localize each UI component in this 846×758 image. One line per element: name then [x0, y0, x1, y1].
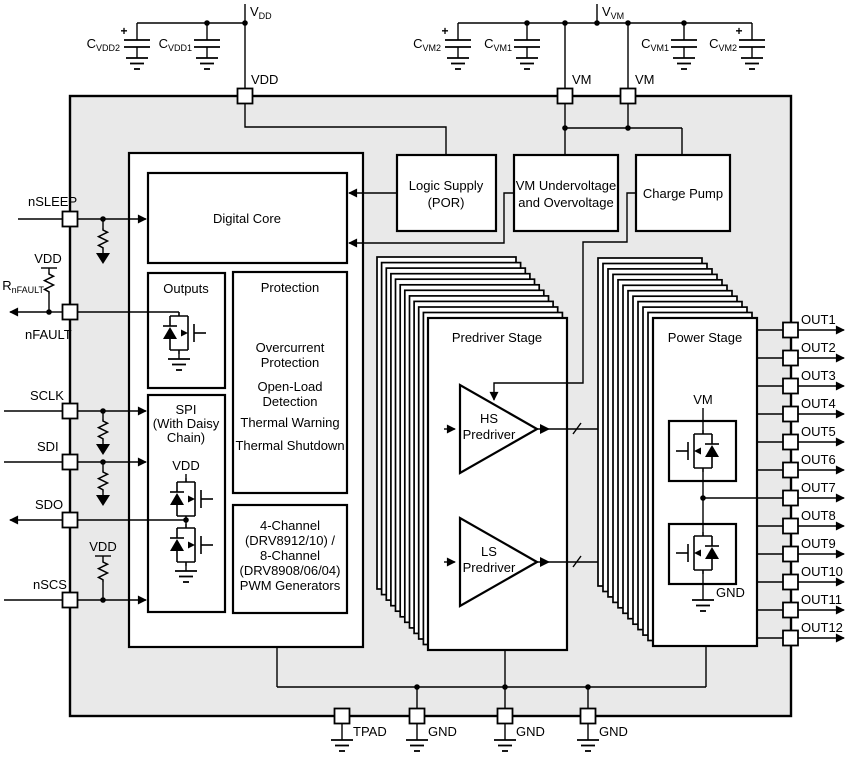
hs-predriver-label-2: Predriver [463, 427, 516, 442]
capacitor-icon [739, 40, 765, 47]
nscs-label: nSCS [33, 577, 67, 592]
pwm-label-2: (DRV8912/10) / [245, 533, 335, 548]
pwm-label-1: 4-Channel [260, 518, 320, 533]
charge-pump-label: Charge Pump [643, 186, 723, 201]
protection-item: Overcurrent [256, 340, 325, 355]
capacitor-icon [194, 40, 220, 47]
vm-monitor-label-2: and Overvoltage [518, 195, 613, 210]
nfault-label: nFAULT [25, 327, 72, 342]
ground-icon [406, 740, 428, 751]
pin-vm-1 [558, 89, 573, 104]
cvdd2-label: CVDD2 [87, 36, 120, 53]
svg-text:GND: GND [428, 724, 457, 739]
vm-pin-1-label: VM [572, 72, 592, 87]
ls-predriver-label-1: LS [481, 544, 497, 559]
ground-icon [126, 58, 148, 69]
svg-text:GND: GND [516, 724, 545, 739]
cvm2-right-plus: + [735, 24, 742, 38]
svg-text:OUT7: OUT7 [801, 480, 836, 495]
pin-vdd [238, 89, 253, 104]
protection-item: Detection [263, 394, 318, 409]
protection-item: Open-Load [257, 379, 322, 394]
svg-text:OUT2: OUT2 [801, 340, 836, 355]
protection-title: Protection [261, 280, 320, 295]
outputs-label: Outputs [163, 281, 209, 296]
block-diagram-page: TPAD GND GND GND OUT1 OUT2 OUT3 OUT4 OUT… [0, 0, 846, 758]
spi-label-3: Chain) [167, 430, 205, 445]
capacitor-icon [445, 40, 471, 47]
sdi-label: SDI [37, 439, 59, 454]
cap-cvdd1 [194, 23, 220, 69]
ground-icon [331, 740, 353, 751]
svg-text:TPAD: TPAD [353, 724, 387, 739]
ground-icon [673, 58, 695, 69]
ls-predriver-label-2: Predriver [463, 560, 516, 575]
drv89xx-block-diagram: TPAD GND GND GND OUT1 OUT2 OUT3 OUT4 OUT… [0, 0, 846, 758]
svg-text:OUT5: OUT5 [801, 424, 836, 439]
vm-monitor-label-1: VM Undervoltage [516, 178, 616, 193]
cvdd1-label: CVDD1 [159, 36, 192, 53]
vm-rail-label: VVM [602, 4, 624, 21]
cvm2-right-label: CVM2 [709, 36, 737, 53]
sclk-label: SCLK [30, 388, 64, 403]
cvdd2-plus: + [120, 24, 127, 38]
svg-text:OUT10: OUT10 [801, 564, 843, 579]
nsleep-label: nSLEEP [28, 194, 77, 209]
spi-label-1: SPI [176, 402, 197, 417]
logic-supply-block [397, 155, 496, 231]
spi-label-2: (With Daisy [153, 416, 220, 431]
pin-sdi [63, 455, 78, 470]
logic-supply-label-1: Logic Supply [409, 178, 484, 193]
ground-icon [577, 740, 599, 751]
cvm2-left-label: CVM2 [413, 36, 441, 53]
ground-icon [447, 58, 469, 69]
r-nfault-label: RnFAULT [2, 278, 44, 295]
predriver-title: Predriver Stage [452, 330, 542, 345]
spi-vdd-label: VDD [172, 458, 199, 473]
pin-nfault [63, 305, 78, 320]
protection-item: Thermal Warning [240, 415, 339, 430]
pwm-label-5: PWM Generators [240, 578, 341, 593]
power-vm-label: VM [693, 392, 713, 407]
nfault-vdd-label: VDD [34, 251, 61, 266]
protection-item: Thermal Shutdown [235, 438, 344, 453]
sdo-label: SDO [35, 497, 63, 512]
pwm-label-3: 8-Channel [260, 548, 320, 563]
ground-icon [516, 58, 538, 69]
svg-text:OUT11: OUT11 [801, 592, 842, 607]
pin-nscs [63, 593, 78, 608]
cvm1-right-label: CVM1 [641, 36, 669, 53]
nscs-vdd-label: VDD [89, 539, 116, 554]
digital-core-label: Digital Core [213, 211, 281, 226]
svg-text:OUT8: OUT8 [801, 508, 836, 523]
svg-text:GND: GND [599, 724, 628, 739]
svg-text:OUT6: OUT6 [801, 452, 836, 467]
capacitor-icon [514, 40, 540, 47]
protection-item: Protection [261, 355, 320, 370]
ground-icon [494, 740, 516, 751]
svg-text:OUT12: OUT12 [801, 620, 843, 635]
hs-predriver-label-1: HS [480, 411, 498, 426]
pin-nsleep [63, 212, 78, 227]
cap-cvdd2 [124, 23, 150, 69]
pin-sdo [63, 513, 78, 528]
capacitor-icon [671, 40, 697, 47]
svg-text:OUT9: OUT9 [801, 536, 836, 551]
cap-cvm2-left [445, 23, 471, 69]
cap-cvm2-right [739, 23, 765, 69]
svg-text:OUT3: OUT3 [801, 368, 836, 383]
logic-supply-label-2: (POR) [428, 195, 465, 210]
predriver-front-card [428, 318, 567, 650]
vdd-rail-label: VDD [250, 4, 272, 21]
cap-cvm1-right [671, 23, 697, 69]
cap-cvm1-left [514, 23, 540, 69]
cvm2-left-plus: + [441, 24, 448, 38]
power-gnd-label: GND [716, 585, 745, 600]
vm-monitor-block [514, 155, 618, 231]
pin-vm-2 [621, 89, 636, 104]
vdd-pin-label: VDD [251, 72, 278, 87]
cvm1-left-label: CVM1 [484, 36, 512, 53]
capacitor-icon [124, 40, 150, 47]
ground-icon [741, 58, 763, 69]
power-stage-title: Power Stage [668, 330, 742, 345]
pin-sclk [63, 404, 78, 419]
svg-text:OUT4: OUT4 [801, 396, 836, 411]
vm-pin-2-label: VM [635, 72, 655, 87]
svg-text:OUT1: OUT1 [801, 312, 836, 327]
resistor-icon [45, 272, 54, 294]
ground-icon [196, 58, 218, 69]
pwm-label-4: (DRV8908/06/04) [240, 563, 341, 578]
